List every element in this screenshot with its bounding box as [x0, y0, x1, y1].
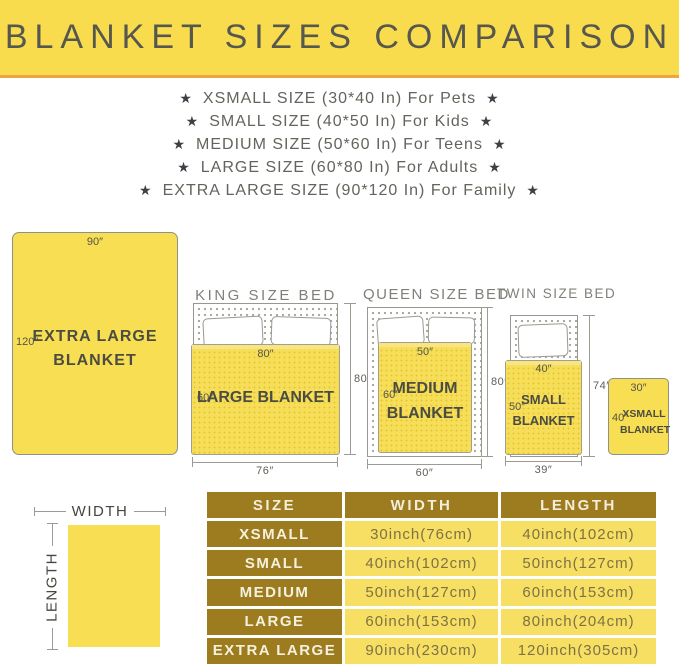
xsmall-blanket-diagram: 30″ 40″ XSMALL BLANKET: [608, 378, 669, 455]
star-icon: ★: [480, 113, 494, 130]
page-title: BLANKET SIZES COMPARISON: [5, 18, 674, 57]
king-height-dimension: 80″: [350, 303, 351, 455]
dimension-line: [34, 511, 66, 512]
table-row-size: EXTRA LARGE: [207, 638, 342, 664]
table-header-width: WIDTH: [345, 492, 498, 518]
blanket-width-label: 40″: [535, 363, 551, 375]
blanket-length-label: 60″: [383, 389, 399, 401]
width-dimension-label: 90″: [87, 236, 103, 248]
star-icon: ★: [177, 159, 191, 176]
blanket-name: MEDIUM BLANKET: [379, 376, 471, 426]
length-legend-label: LENGTH: [41, 546, 64, 628]
length-dimension-label: 120″: [16, 336, 38, 348]
star-icon: ★: [179, 90, 193, 107]
table-row-size: XSMALL: [207, 521, 342, 547]
blanket-sizes-infographic: BLANKET SIZES COMPARISON ★ XSMALL SIZE (…: [0, 0, 679, 667]
pillow: [517, 323, 568, 358]
table-cell-width: 40inch(102cm): [345, 550, 498, 576]
list-item: ★ XSMALL SIZE (30*40 In) For Pets ★: [0, 87, 679, 110]
table-header-size: SIZE: [207, 492, 342, 518]
extra-large-blanket-diagram: 90″ 120″ EXTRA LARGE BLANKET: [12, 232, 178, 455]
list-item-text: SMALL SIZE (40*50 In) For Kids: [209, 113, 470, 131]
table-cell-width: 60inch(153cm): [345, 609, 498, 635]
star-icon: ★: [186, 113, 200, 130]
banner: BLANKET SIZES COMPARISON: [0, 0, 679, 78]
blanket-name: LARGE BLANKET: [192, 389, 339, 407]
table-cell-width: 90inch(230cm): [345, 638, 498, 664]
table-cell-length: 40inch(102cm): [501, 521, 656, 547]
width-dimension-label: 30″: [630, 382, 646, 394]
star-icon: ★: [172, 136, 186, 153]
star-icon: ★: [526, 182, 540, 199]
blanket-width-label: 80″: [257, 348, 273, 360]
blanket-name: EXTRA LARGE BLANKET: [13, 325, 177, 373]
dimension-label: 39″: [535, 464, 553, 476]
star-icon: ★: [493, 136, 507, 153]
king-width-dimension: 76″: [192, 462, 338, 463]
width-legend-label: WIDTH: [72, 503, 129, 520]
list-item-text: LARGE SIZE (60*80 In) For Adults: [201, 159, 478, 177]
length-legend: LENGTH: [41, 523, 63, 650]
twin-height-dimension: 74″: [589, 315, 590, 457]
dimension-line: [134, 511, 166, 512]
size-table: SIZE WIDTH LENGTH XSMALL 30inch(76cm) 40…: [207, 492, 656, 664]
blanket-length-label: 50″: [509, 401, 525, 413]
pillow: [428, 317, 475, 345]
table-cell-length: 120inch(305cm): [501, 638, 656, 664]
table-row-size: LARGE: [207, 609, 342, 635]
table-cell-length: 80inch(204cm): [501, 609, 656, 635]
blanket-width-label: 50″: [417, 346, 433, 358]
twin-bed-title: TWIN SIZE BED: [497, 286, 595, 301]
table-cell-length: 60inch(153cm): [501, 579, 656, 605]
list-item-text: EXTRA LARGE SIZE (90*120 In) For Family: [163, 182, 517, 200]
medium-blanket: 50″ 60″ MEDIUM BLANKET: [378, 342, 472, 453]
table-row-size: MEDIUM: [207, 579, 342, 605]
star-icon: ★: [486, 90, 500, 107]
length-dimension-label: 40″: [612, 412, 628, 424]
queen-width-dimension: 60″: [367, 464, 482, 465]
table-header-length: LENGTH: [501, 492, 656, 518]
table-row-size: SMALL: [207, 550, 342, 576]
king-bed-title: KING SIZE BED: [192, 287, 340, 304]
star-icon: ★: [139, 182, 153, 199]
list-item: ★ EXTRA LARGE SIZE (90*120 In) For Famil…: [0, 179, 679, 202]
list-item: ★ SMALL SIZE (40*50 In) For Kids ★: [0, 110, 679, 133]
list-item: ★ MEDIUM SIZE (50*60 In) For Teens ★: [0, 133, 679, 156]
queen-bed-title: QUEEN SIZE BED: [363, 286, 483, 303]
twin-width-dimension: 39″: [505, 461, 582, 462]
table-cell-width: 50inch(127cm): [345, 579, 498, 605]
table-cell-length: 50inch(127cm): [501, 550, 656, 576]
list-item: ★ LARGE SIZE (60*80 In) For Adults ★: [0, 156, 679, 179]
list-item-text: XSMALL SIZE (30*40 In) For Pets: [203, 90, 476, 108]
size-list: ★ XSMALL SIZE (30*40 In) For Pets ★ ★ SM…: [0, 87, 679, 202]
large-blanket: 80″ 60″ LARGE BLANKET: [191, 344, 340, 455]
table-cell-width: 30inch(76cm): [345, 521, 498, 547]
blanket-length-label: 60″: [197, 392, 213, 404]
legend-blanket-swatch: [68, 525, 160, 647]
star-icon: ★: [488, 159, 502, 176]
dimension-label: 60″: [416, 467, 434, 479]
small-blanket: 40″ 50″ SMALL BLANKET: [505, 360, 582, 455]
width-legend: WIDTH: [34, 503, 166, 519]
queen-height-dimension: 80″: [487, 307, 488, 457]
dimension-label: 76″: [256, 465, 274, 477]
pillow: [271, 316, 332, 347]
list-item-text: MEDIUM SIZE (50*60 In) For Teens: [196, 136, 483, 154]
